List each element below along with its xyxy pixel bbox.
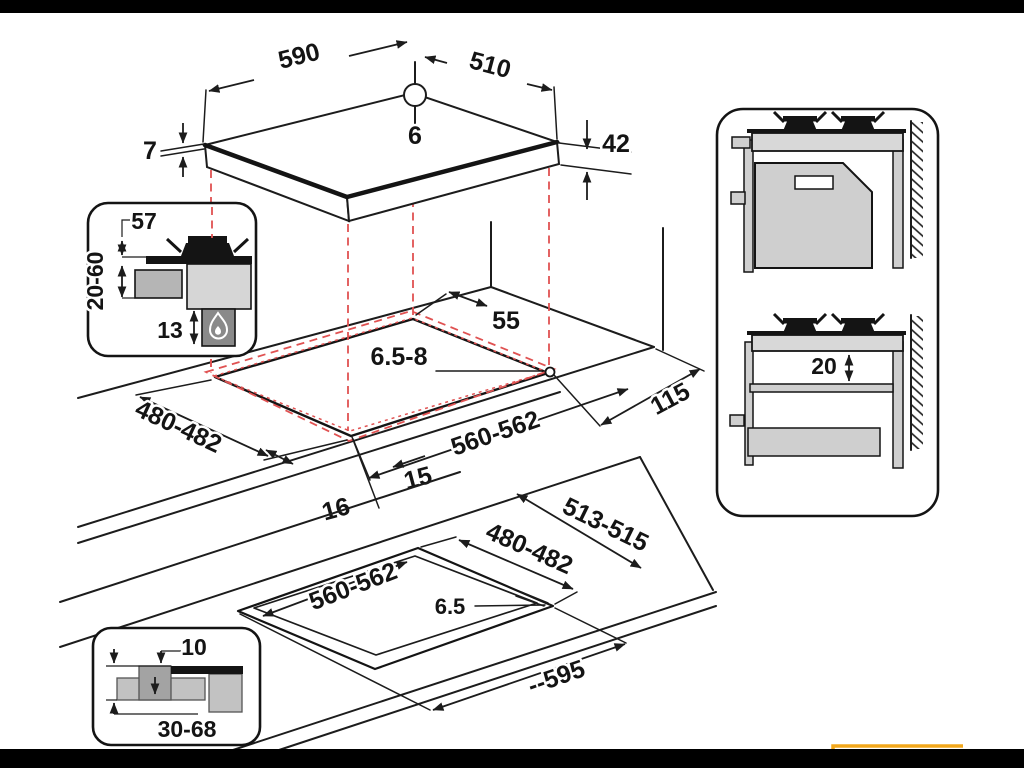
worktop-section (752, 133, 903, 151)
shelf (750, 384, 893, 392)
top-letterbox-bar (0, 0, 1024, 13)
dim-flange-depth-label: 6.5 (435, 594, 466, 619)
drawer (748, 428, 880, 456)
gas-connection-hole (404, 84, 426, 106)
side-view-shelf: 20 (730, 314, 923, 468)
dim-body-height-label: 42 (602, 130, 630, 158)
dim-shelf-clearance-label: 20 (811, 353, 837, 379)
dim-burner-depth-label: 13 (157, 317, 183, 343)
dim-hole-offset-label: 6 (408, 122, 422, 150)
side-views-panel: 20 (717, 109, 938, 516)
burner-section-inset: 57 20-60 13 (82, 203, 256, 356)
dim-glass-thickness-label: 7 (143, 137, 157, 165)
dim-burner-width-label: 57 (131, 208, 157, 234)
dim-worktop-range-label: 30-68 (158, 716, 217, 742)
dim-hole-diameter-label: 6.5-8 (371, 343, 428, 371)
dim-back-gap-label: 55 (492, 307, 520, 335)
flush-edge-inset: 10 30-68 (93, 628, 260, 745)
bottom-letterbox-bar (0, 749, 1024, 768)
side-view-oven (731, 112, 923, 272)
fixing-hole (546, 368, 555, 377)
dim-worktop-thickness-label: 20-60 (82, 252, 108, 311)
dim-flange-gap-label: 10 (181, 634, 207, 660)
oven-vent (795, 176, 833, 189)
hob-installation-diagram: 55 6.5-8 115 480-482 560-562 15 16 (0, 0, 1024, 768)
